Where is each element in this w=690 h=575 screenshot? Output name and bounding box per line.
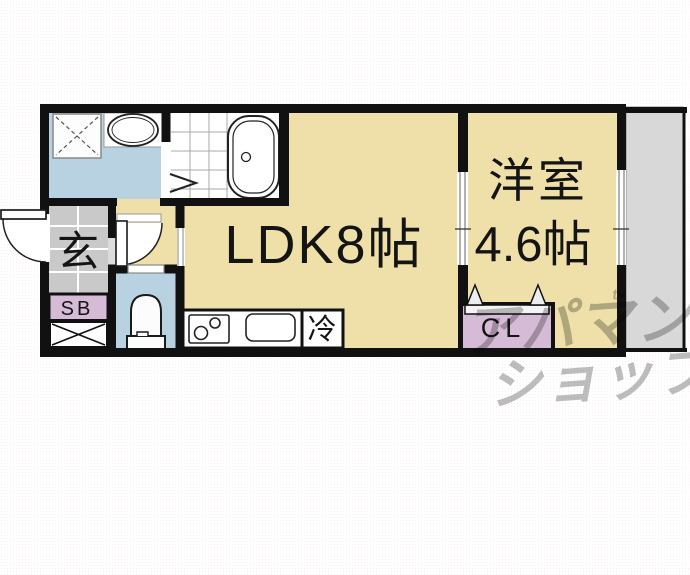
kitchen-sink-icon	[246, 314, 295, 341]
pipe-space-box	[49, 321, 108, 348]
stove-icon	[189, 315, 229, 343]
hallway-doorway	[177, 228, 185, 266]
washbasin-icon	[104, 113, 163, 147]
shoe-box-label: SB	[61, 298, 94, 320]
floorplan-svg: LDK8帖 洋室 4.6帖 玄 SB CL 冷 アパマン ショップ tv	[0, 0, 690, 575]
toilet-door	[128, 265, 164, 273]
western-room-name: 洋室	[488, 154, 588, 207]
washing-machine-icon	[53, 114, 101, 158]
entrance-door	[1, 210, 50, 262]
watermark: アパマン ショップ tv	[460, 279, 690, 417]
western-room-size: 4.6帖	[474, 218, 591, 272]
entrance-label: 玄	[57, 228, 99, 275]
refrigerator-label: 冷	[307, 313, 336, 346]
bathtub-icon	[228, 116, 279, 198]
toilet-icon	[127, 295, 165, 349]
ldk-label: LDK8帖	[224, 215, 423, 275]
floorplan-image: LDK8帖 洋室 4.6帖 玄 SB CL 冷 アパマン ショップ tv	[0, 0, 690, 575]
kitchen-counter	[181, 310, 302, 348]
